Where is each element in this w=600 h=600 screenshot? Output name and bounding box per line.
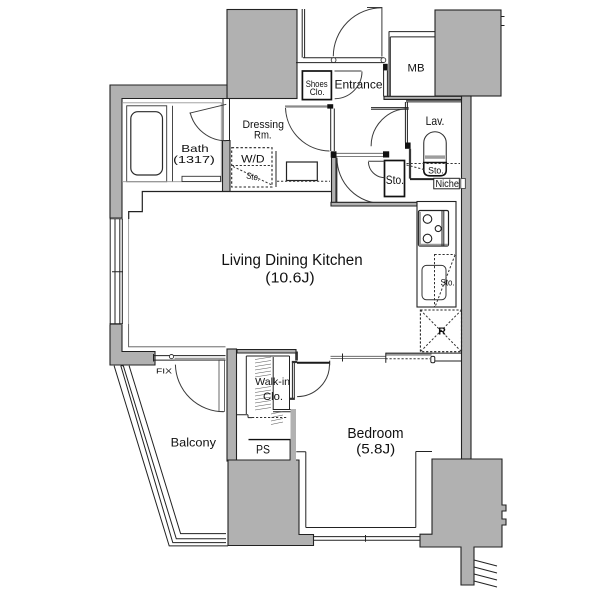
svg-text:(5.8J): (5.8J)	[356, 441, 395, 457]
svg-text:Rm.: Rm.	[254, 130, 272, 142]
svg-text:Lav.: Lav.	[426, 114, 445, 128]
svg-text:Clo.: Clo.	[263, 391, 283, 403]
svg-text:Walk-in: Walk-in	[255, 377, 290, 388]
svg-text:Clo.: Clo.	[310, 87, 325, 98]
svg-text:R: R	[438, 325, 446, 337]
svg-text:Bath: Bath	[181, 143, 209, 155]
svg-text:Balcony: Balcony	[171, 436, 217, 450]
svg-text:W/D: W/D	[241, 153, 265, 165]
svg-text:(10.6J): (10.6J)	[265, 270, 314, 286]
svg-text:Sto.: Sto.	[386, 173, 404, 187]
svg-text:PS: PS	[256, 445, 270, 457]
svg-text:MB: MB	[408, 63, 425, 75]
svg-text:Sto.: Sto.	[441, 277, 455, 288]
svg-text:Niche: Niche	[435, 179, 459, 190]
svg-text:Living Dining Kitchen: Living Dining Kitchen	[221, 252, 362, 269]
svg-text:FIX: FIX	[156, 367, 172, 376]
svg-text:Sto.: Sto.	[428, 166, 444, 176]
svg-text:(1317): (1317)	[173, 154, 215, 166]
